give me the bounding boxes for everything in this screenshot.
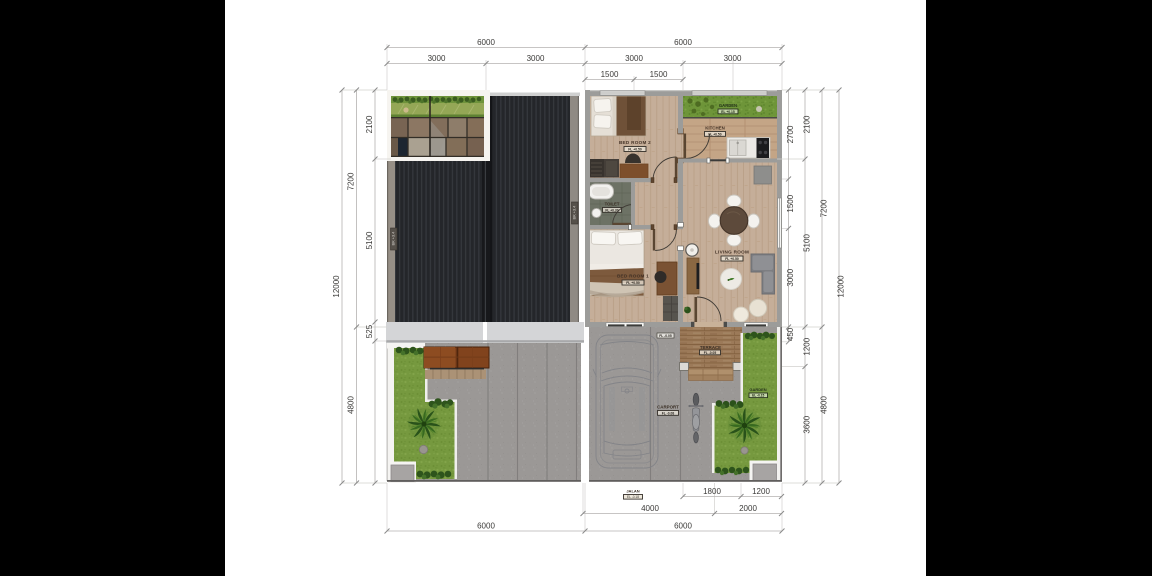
svg-text:FL +0.30: FL +0.30 [605, 208, 618, 212]
svg-text:3000: 3000 [786, 268, 795, 286]
svg-text:EL -0.15: EL -0.15 [752, 394, 764, 398]
svg-text:FL +0.50: FL +0.50 [626, 281, 640, 285]
svg-text:GARDEN: GARDEN [749, 387, 766, 392]
svg-text:FL +0.50: FL +0.50 [628, 147, 642, 151]
svg-text:6000: 6000 [477, 38, 495, 47]
svg-text:BK +3.4: BK +3.4 [573, 206, 577, 220]
svg-text:2100: 2100 [365, 115, 374, 133]
svg-text:3000: 3000 [428, 54, 446, 63]
svg-text:BED ROOM 2: BED ROOM 2 [619, 140, 651, 145]
svg-text:3000: 3000 [724, 54, 742, 63]
svg-text:GARDEN: GARDEN [719, 103, 737, 108]
svg-text:CARPORT: CARPORT [657, 405, 679, 410]
svg-text:1500: 1500 [650, 70, 668, 79]
svg-text:1800: 1800 [703, 487, 721, 496]
svg-text:TERRACE: TERRACE [700, 345, 721, 350]
svg-text:FL +0.50: FL +0.50 [725, 257, 739, 261]
svg-text:LIVING ROOM: LIVING ROOM [715, 250, 749, 255]
svg-text:2000: 2000 [739, 504, 757, 513]
svg-text:BK +3.4: BK +3.4 [392, 232, 396, 246]
svg-text:6000: 6000 [477, 522, 495, 531]
svg-text:BED ROOM 1: BED ROOM 1 [617, 274, 649, 279]
svg-text:2700: 2700 [786, 125, 795, 143]
svg-text:FL -0.05: FL -0.05 [659, 334, 672, 338]
svg-text:3600: 3600 [803, 415, 812, 433]
svg-text:5100: 5100 [365, 231, 374, 249]
svg-text:JALAN: JALAN [626, 489, 639, 494]
svg-text:7200: 7200 [347, 172, 356, 190]
svg-text:FL -0.05: FL -0.05 [704, 351, 717, 355]
svg-text:KITCHEN: KITCHEN [705, 126, 725, 131]
svg-text:3000: 3000 [625, 54, 643, 63]
svg-text:1500: 1500 [601, 70, 619, 79]
svg-text:12000: 12000 [332, 275, 341, 298]
svg-text:FL +0.50: FL +0.50 [708, 132, 721, 136]
svg-text:1200: 1200 [803, 337, 812, 355]
svg-text:6000: 6000 [674, 38, 692, 47]
svg-text:4800: 4800 [347, 396, 356, 414]
svg-text:EL +0.15: EL +0.15 [721, 110, 735, 114]
svg-text:4800: 4800 [820, 396, 829, 414]
svg-text:4000: 4000 [641, 504, 659, 513]
svg-text:450: 450 [786, 327, 795, 341]
svg-text:1200: 1200 [752, 487, 770, 496]
svg-text:525: 525 [365, 324, 374, 338]
svg-text:1500: 1500 [786, 194, 795, 212]
svg-text:TOILET: TOILET [605, 202, 620, 207]
svg-text:2100: 2100 [803, 115, 812, 133]
svg-text:EL -0.18: EL -0.18 [627, 495, 639, 499]
svg-text:FL -0.08: FL -0.08 [662, 411, 675, 415]
svg-text:3000: 3000 [527, 54, 545, 63]
svg-text:12000: 12000 [837, 275, 846, 298]
svg-text:6000: 6000 [674, 522, 692, 531]
svg-text:5100: 5100 [803, 234, 812, 252]
svg-text:7200: 7200 [820, 199, 829, 217]
